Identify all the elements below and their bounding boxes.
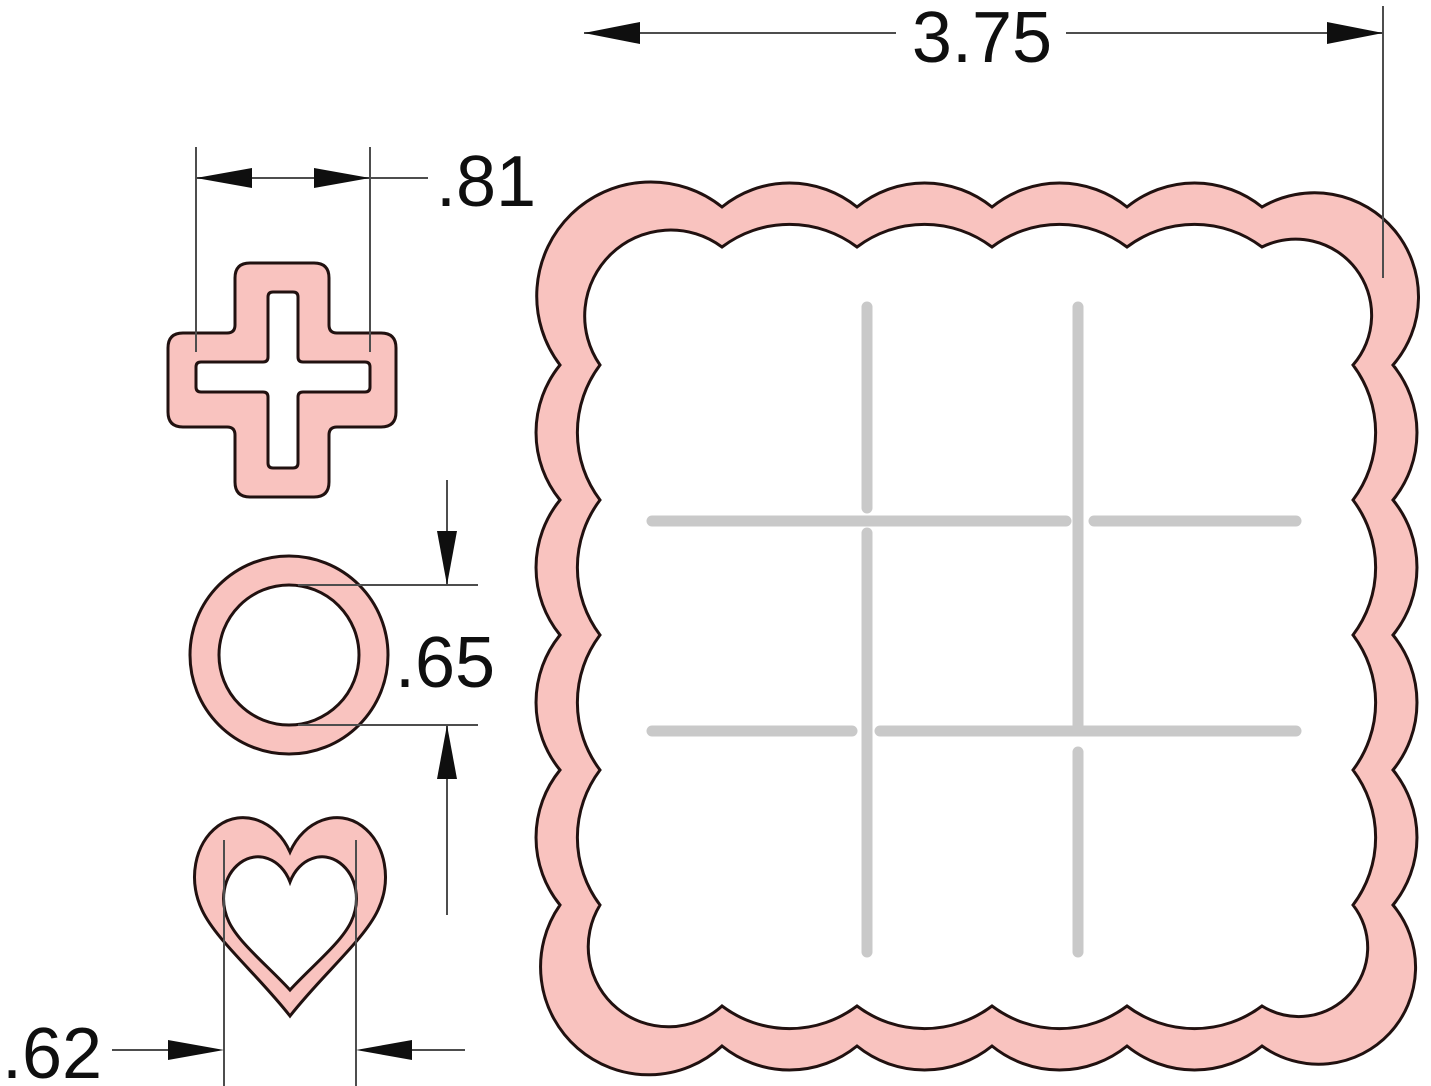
arrowhead-right	[314, 168, 370, 188]
dimension-heart-width: .62	[2, 840, 465, 1086]
tic-tac-toe-grid	[652, 307, 1296, 952]
dimension-value: .81	[436, 142, 536, 222]
plus-cutter	[168, 263, 396, 497]
arrowhead-left	[356, 1040, 412, 1060]
dimension-value: 3.75	[912, 0, 1052, 78]
board-frame	[536, 182, 1418, 1075]
arrowhead-right	[1327, 22, 1383, 44]
arrowhead-left	[584, 22, 640, 44]
dimension-value: .65	[395, 623, 495, 703]
arrowhead-left	[196, 168, 252, 188]
drawing-canvas: 3.75 .81 .65	[0, 0, 1431, 1086]
arrowhead-up	[437, 725, 457, 779]
arrowhead-down	[437, 531, 457, 585]
dimension-value: .62	[2, 1014, 102, 1086]
arrowhead-right	[168, 1040, 224, 1060]
